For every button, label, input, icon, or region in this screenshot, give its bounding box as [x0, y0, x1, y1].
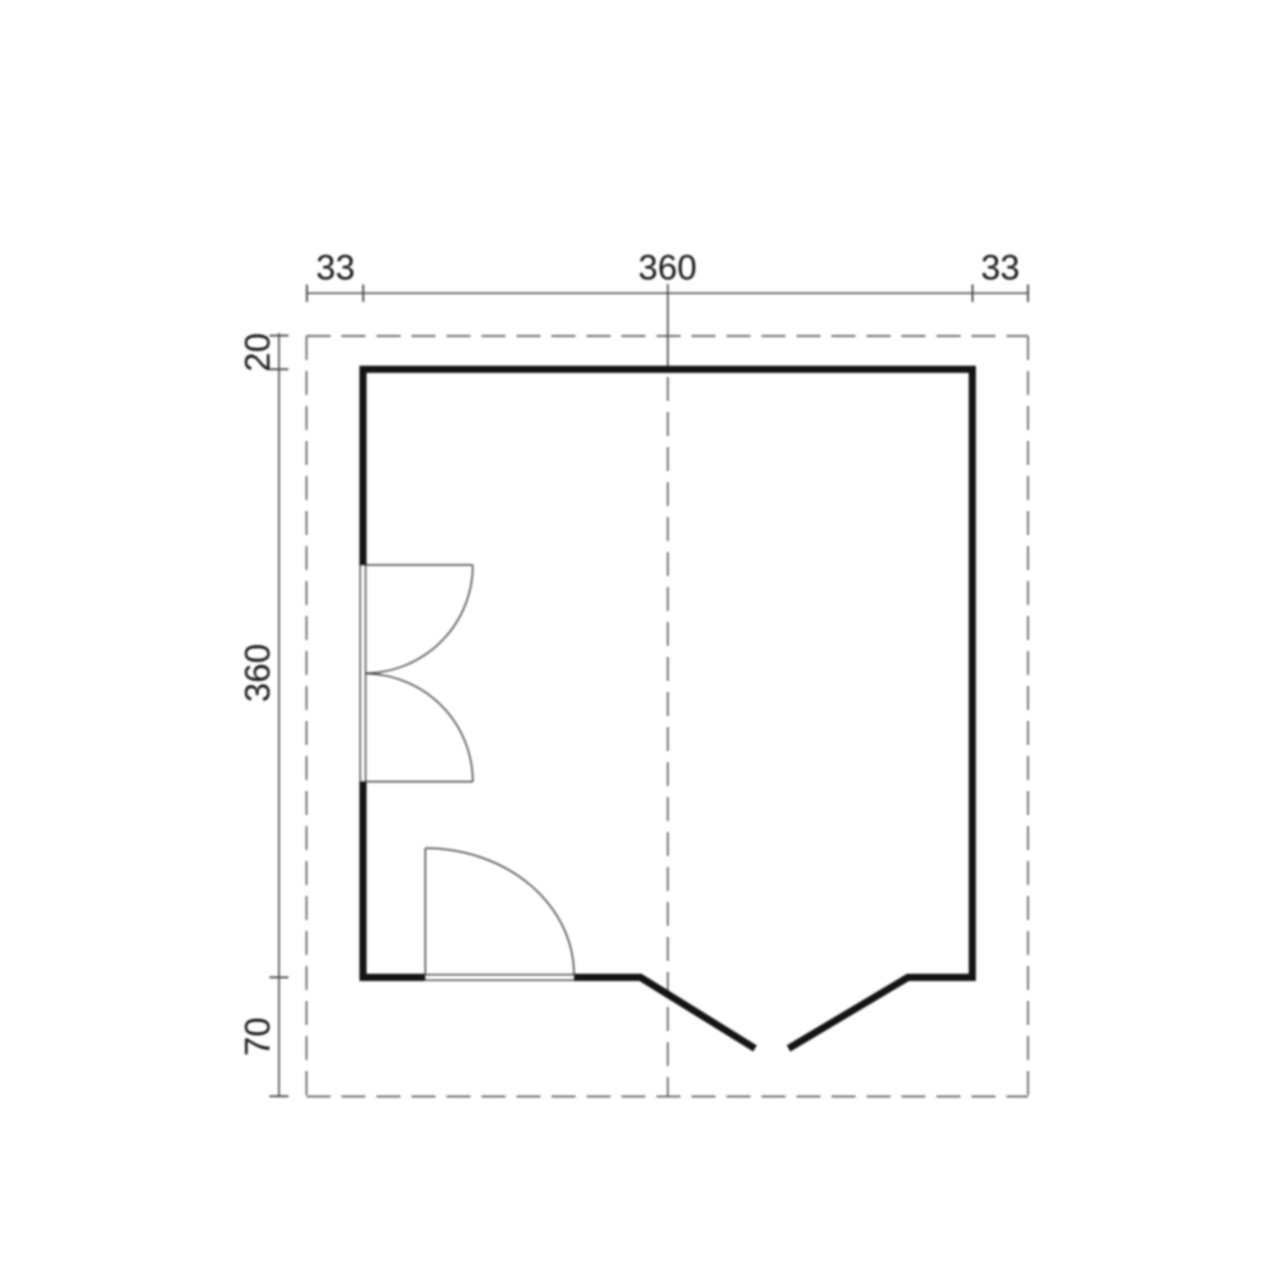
svg-text:360: 360: [638, 249, 696, 288]
svg-text:20: 20: [239, 333, 278, 372]
svg-text:33: 33: [981, 249, 1020, 288]
svg-text:360: 360: [239, 644, 278, 702]
svg-text:33: 33: [316, 249, 355, 288]
svg-text:70: 70: [239, 1017, 278, 1056]
